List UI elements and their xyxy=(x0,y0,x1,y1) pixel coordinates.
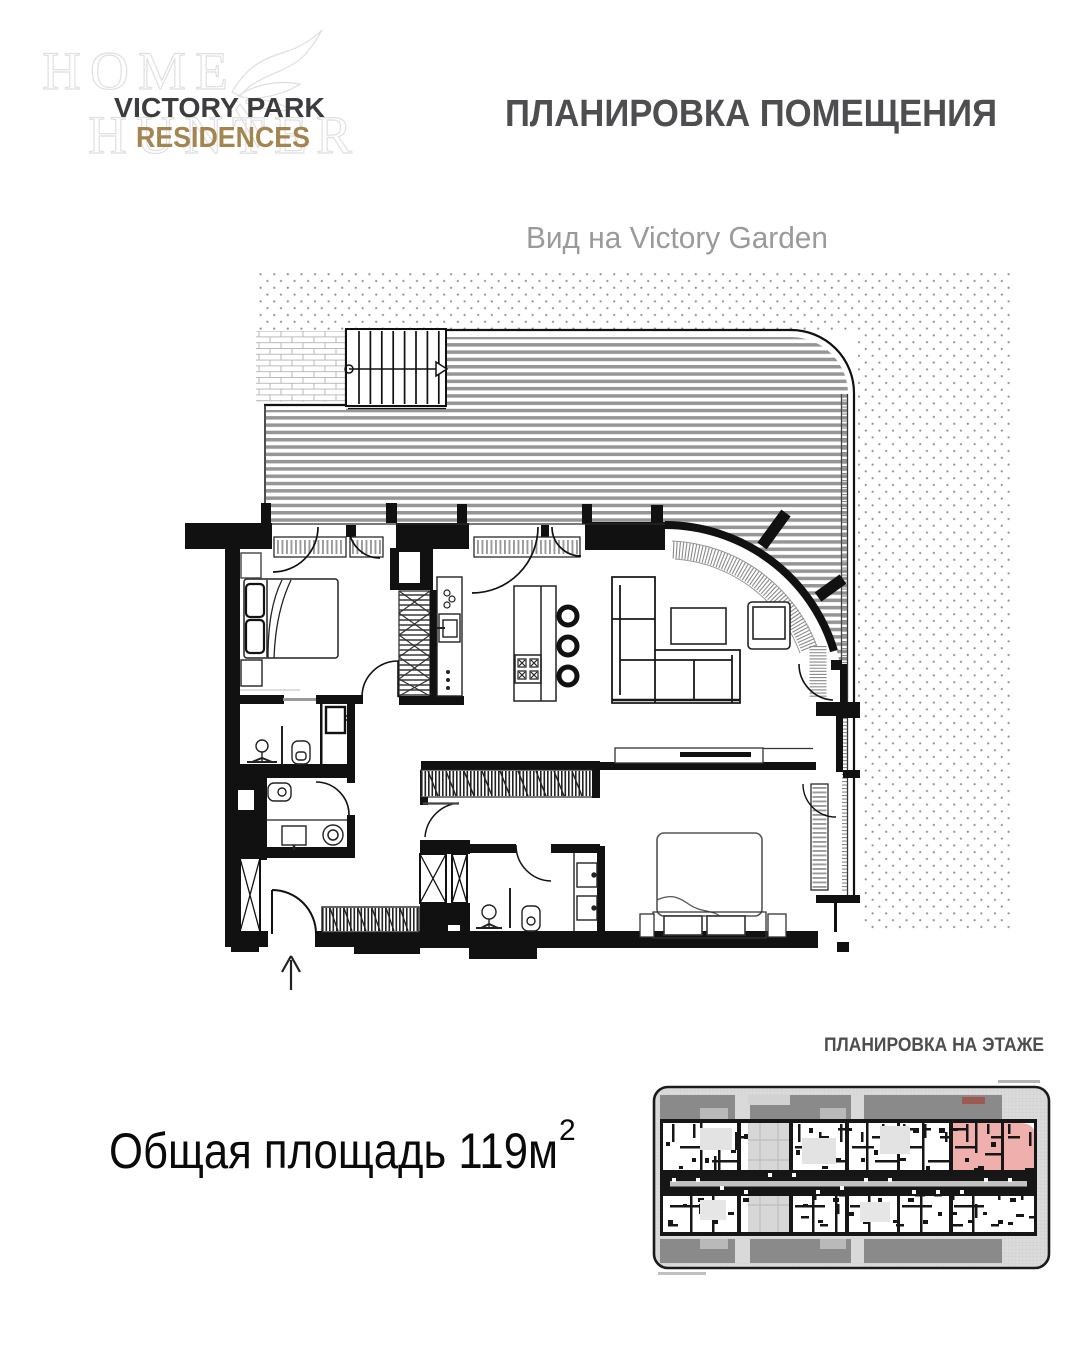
svg-text:Вид на Victory Garden: Вид на Victory Garden xyxy=(526,220,828,255)
svg-text:ПЛАНИРОВКА ПОМЕЩЕНИЯ: ПЛАНИРОВКА ПОМЕЩЕНИЯ xyxy=(505,93,997,135)
svg-text:VICTORY PARK: VICTORY PARK xyxy=(114,92,325,123)
svg-text:2: 2 xyxy=(559,1114,576,1147)
svg-text:ПЛАНИРОВКА НА ЭТАЖЕ: ПЛАНИРОВКА НА ЭТАЖЕ xyxy=(824,1034,1044,1056)
svg-text:Общая площадь 119м: Общая площадь 119м xyxy=(109,1123,558,1179)
svg-text:RESIDENCES: RESIDENCES xyxy=(136,122,310,154)
